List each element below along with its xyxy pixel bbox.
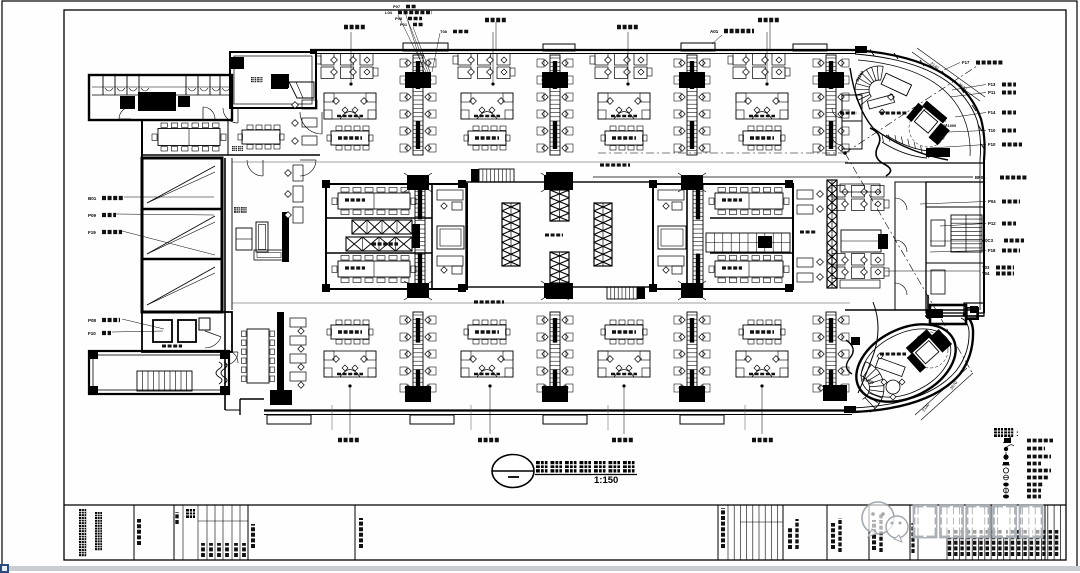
- svg-text:F18: F18: [988, 248, 996, 253]
- svg-text:T04: T04: [982, 271, 990, 276]
- svg-text:1:150: 1:150: [594, 475, 618, 486]
- svg-text:P09: P09: [88, 213, 97, 218]
- svg-text:P07: P07: [393, 4, 401, 9]
- svg-text:F19: F19: [88, 230, 96, 235]
- svg-text:T03: T03: [982, 265, 990, 270]
- svg-text:P11: P11: [988, 90, 996, 95]
- svg-text:BF01: BF01: [975, 175, 986, 180]
- svg-text:1900: 1900: [936, 339, 944, 343]
- svg-text:F17: F17: [962, 60, 970, 65]
- svg-text::: :: [1016, 429, 1019, 438]
- svg-text:F14: F14: [988, 110, 996, 115]
- svg-text:B01: B01: [88, 196, 97, 201]
- svg-text:T10: T10: [988, 128, 996, 133]
- svg-text:F10: F10: [88, 331, 96, 336]
- svg-text:L04: L04: [385, 10, 393, 15]
- svg-text:W 1000: W 1000: [943, 124, 956, 128]
- svg-text:P04: P04: [988, 199, 996, 204]
- svg-text:A01: A01: [710, 29, 719, 34]
- svg-text:F10: F10: [988, 142, 996, 147]
- svg-text:A0C3: A0C3: [982, 238, 994, 243]
- svg-text:F13: F13: [988, 82, 996, 87]
- svg-text:P08: P08: [88, 318, 97, 323]
- svg-text:T08: T08: [440, 29, 448, 34]
- svg-text:P12: P12: [988, 221, 996, 226]
- svg-text:P01: P01: [400, 22, 408, 27]
